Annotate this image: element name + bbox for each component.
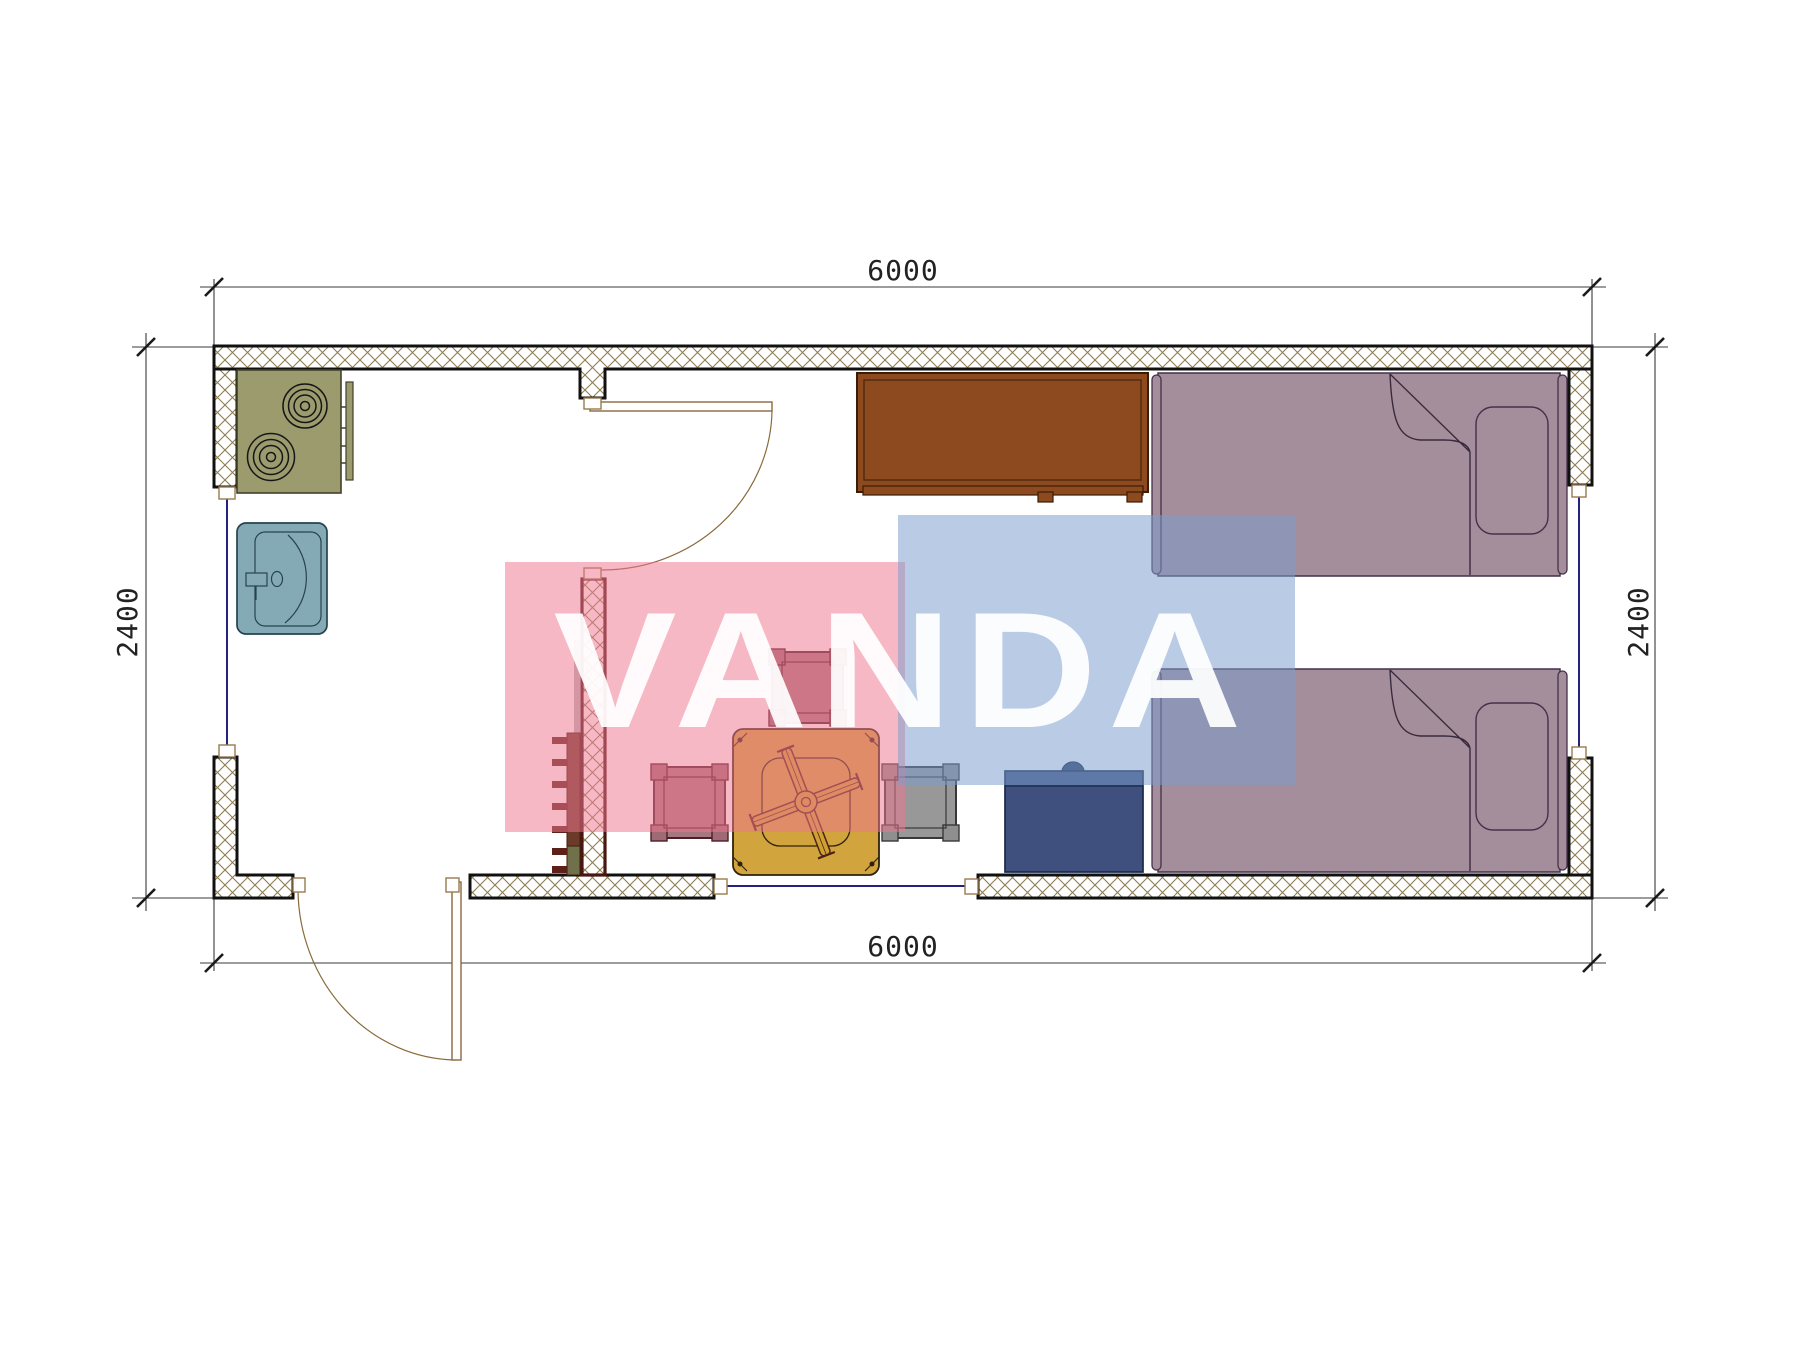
floor-plan-drawing: 6000 6000 2400 2400 VANDA [0, 0, 1800, 1350]
kitchen-sink [237, 523, 327, 634]
watermark: VANDA [505, 515, 1295, 832]
pillow [1476, 703, 1548, 830]
wall-right-upper [1569, 369, 1592, 485]
interior-door-arc [601, 411, 772, 570]
floor-plan-page: 6000 6000 2400 2400 VANDA [0, 0, 1800, 1350]
wardrobe-foot [1038, 492, 1053, 502]
dim-label-right: 2400 [1622, 586, 1655, 657]
towel-rail [346, 382, 353, 480]
wall-left-upper [214, 369, 237, 487]
wardrobe-body [857, 373, 1148, 492]
cooktop-counter [237, 370, 341, 493]
wardrobe [857, 373, 1148, 502]
wall-left-lower-L [214, 757, 293, 898]
wall-bottom-right [978, 875, 1592, 898]
table-corner-dot [870, 862, 875, 867]
bed-head-bar [1558, 375, 1567, 574]
pillow [1476, 407, 1548, 534]
sink-faucet-knob [272, 572, 283, 587]
interior-door [590, 402, 772, 570]
sink-faucet [246, 573, 267, 586]
wall-right-lower [1569, 758, 1592, 875]
dim-label-left: 2400 [111, 586, 144, 657]
table-corner-dot [738, 862, 743, 867]
bed-head-bar [1558, 671, 1567, 870]
kitchen-cooktop [237, 370, 353, 493]
entrance-door-arc [298, 891, 456, 1060]
dim-label-top: 6000 [867, 254, 938, 287]
hooks-bar-lower [567, 846, 580, 875]
wardrobe-base-bar [863, 486, 1143, 495]
watermark-text: VANDA [553, 578, 1252, 763]
wardrobe-foot [1127, 492, 1142, 502]
entrance-door [298, 882, 461, 1060]
wall-bottom-mid [470, 875, 714, 898]
interior-door-leaf [590, 402, 772, 411]
entrance-door-leaf [452, 882, 461, 1060]
dim-label-bottom: 6000 [867, 930, 938, 963]
